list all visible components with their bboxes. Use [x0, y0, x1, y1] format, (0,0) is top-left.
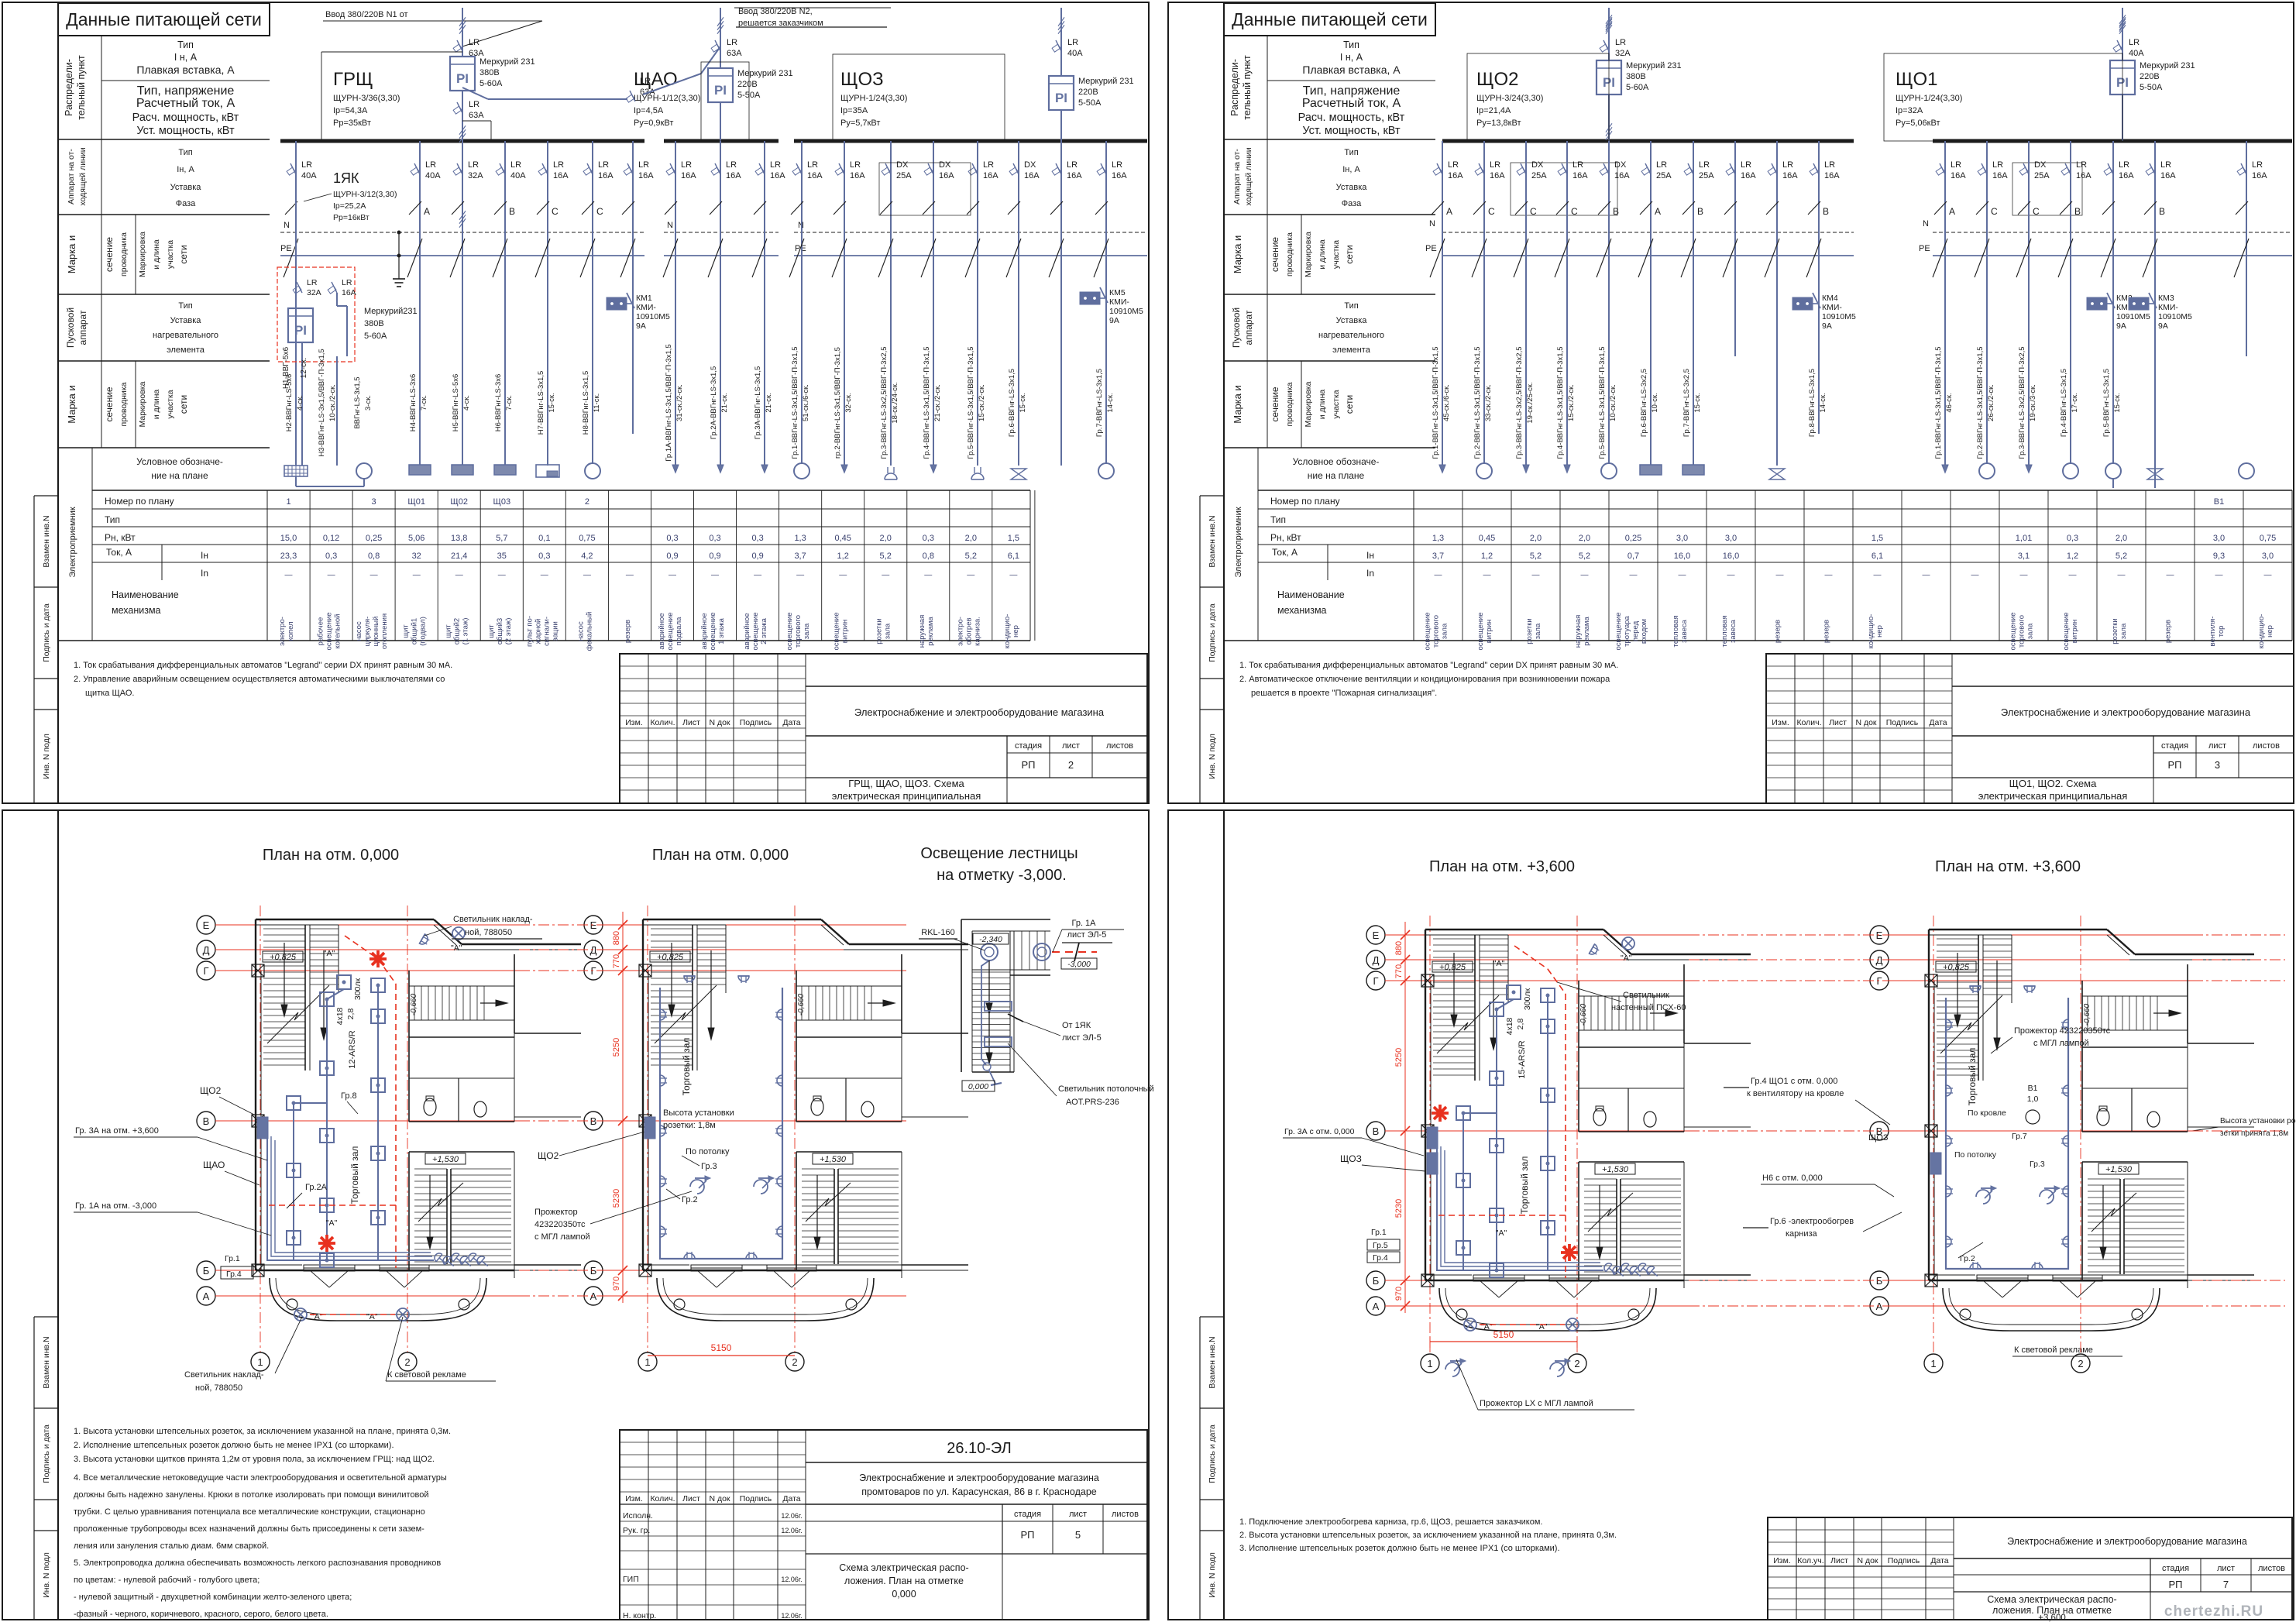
svg-text:жарной: жарной [534, 619, 542, 644]
svg-text:кондицио-: кондицио- [2257, 614, 2266, 649]
svg-text:Высота установки ро-: Высота установки ро- [2220, 1117, 2296, 1125]
svg-text:Электроприемник: Электроприемник [1234, 507, 1243, 577]
svg-text:Взамен инв.N: Взамен инв.N [1208, 515, 1217, 567]
svg-text:1. Ток срабатывания дифференц: 1. Ток срабатывания дифференциальных авт… [1239, 661, 1618, 670]
svg-text:5,06: 5,06 [408, 534, 424, 543]
svg-text:10910М5: 10910М5 [636, 312, 670, 321]
svg-text:—: — [1874, 571, 1882, 579]
svg-text:ЩО1, ЩО2. Схема: ЩО1, ЩО2. Схема [2009, 778, 2097, 789]
svg-text:с МГЛ лампой: с МГЛ лампой [534, 1232, 590, 1242]
svg-text:общий1: общий1 [411, 618, 419, 644]
svg-text:Условное обозначе-: Условное обозначе- [136, 456, 223, 467]
svg-text:16А: 16А [2160, 171, 2176, 180]
svg-text:—: — [1727, 571, 1735, 579]
svg-text:Тип: Тип [105, 514, 120, 525]
svg-text:LR: LR [640, 77, 651, 86]
svg-text:Н7-ВВГнг-LS-3х1,5: Н7-ВВГнг-LS-3х1,5 [537, 371, 545, 435]
svg-text:ложения. План на отметке: ложения. План на отметке [844, 1576, 964, 1586]
svg-text:Гр.1-ВВГнг-LS-3х1,5/ВВГ-П-3х1,: Гр.1-ВВГнг-LS-3х1,5/ВВГ-П-3х1,5 [791, 346, 799, 459]
svg-text:Лист: Лист [1830, 1556, 1848, 1565]
svg-text:5230: 5230 [1394, 1199, 1404, 1218]
svg-text:завеса: завеса [1680, 619, 1689, 643]
svg-text:механизма: механизма [112, 605, 161, 616]
svg-text:нагревательного: нагревательного [153, 331, 218, 340]
svg-text:880: 880 [612, 931, 621, 945]
svg-text:Взамен инв.N: Взамен инв.N [42, 1336, 51, 1388]
svg-text:LR: LR [726, 160, 737, 170]
svg-text:0,9: 0,9 [666, 552, 678, 561]
svg-text:10-ск./2-ск.: 10-ск./2-ск. [328, 384, 337, 421]
svg-text:5250: 5250 [612, 1038, 621, 1057]
svg-text:A: A [1949, 206, 1955, 217]
svg-text:сети: сети [1344, 245, 1355, 263]
svg-text:3: 3 [372, 497, 376, 507]
svg-text:Д: Д [1876, 954, 1883, 966]
svg-text:обогрев: обогрев [964, 617, 973, 644]
svg-text:14-ск.: 14-ск. [1106, 393, 1115, 412]
svg-text:ГРЩ, ЩАО, ЩОЗ. Схема: ГРЩ, ЩАО, ЩОЗ. Схема [848, 778, 964, 789]
svg-text:Iр=32А: Iр=32А [1896, 106, 1923, 115]
svg-text:9А: 9А [636, 321, 646, 331]
svg-text:Гр.1А-ВВГнг-LS-3х1,5/ВВГ-П-3х1: Гр.1А-ВВГнг-LS-3х1,5/ВВГ-П-3х1,5 [665, 344, 673, 461]
svg-text:Тип: Тип [1343, 40, 1359, 50]
svg-text:освещение: освещение [709, 612, 717, 650]
svg-text:C: C [1991, 206, 1998, 217]
svg-text:16А: 16А [1024, 171, 1040, 180]
svg-text:C: C [552, 206, 559, 217]
svg-text:-2,340: -2,340 [979, 935, 1002, 944]
svg-text:32А: 32А [468, 171, 483, 180]
svg-text:16А: 16А [638, 171, 654, 180]
svg-text:LR: LR [1490, 160, 1500, 170]
svg-text:3,7: 3,7 [794, 552, 806, 561]
svg-text:LR: LR [425, 160, 436, 170]
svg-text:1,2: 1,2 [837, 552, 849, 561]
svg-text:2,0: 2,0 [1530, 534, 1542, 543]
svg-text:15-ск.: 15-ск. [1019, 393, 1027, 412]
svg-text:"А": "А" [1621, 954, 1632, 963]
svg-text:1,2: 1,2 [2067, 552, 2078, 561]
svg-text:Гр.4-ВВГнг-LS-3х1,5/ВВГ-П-3х1,: Гр.4-ВВГнг-LS-3х1,5/ВВГ-П-3х1,5 [923, 346, 931, 459]
svg-text:Аппарат на от-: Аппарат на от- [67, 149, 76, 204]
svg-text:Тип: Тип [1270, 514, 1286, 525]
svg-text:Данные питающей сети: Данные питающей сети [1232, 9, 1428, 29]
svg-text:Гр.3-ВВГнг-LS-3х2,5/ВВГ-П-3х2,: Гр.3-ВВГнг-LS-3х2,5/ВВГ-П-3х2,5 [2018, 346, 2026, 459]
svg-text:Фаза: Фаза [176, 199, 196, 208]
svg-text:тепловая: тепловая [1720, 616, 1729, 648]
svg-text:—: — [1483, 571, 1491, 579]
svg-text:16А: 16А [2252, 171, 2267, 180]
svg-text:1ЯК: 1ЯК [333, 170, 359, 186]
svg-text:ЩУРН-1/24(3,30): ЩУРН-1/24(3,30) [1896, 94, 1962, 103]
svg-text:витрин: витрин [1485, 620, 1493, 644]
svg-text:PE: PE [280, 244, 292, 253]
svg-text:общий3: общий3 [496, 618, 504, 644]
svg-text:Светильник потолочный: Светильник потолочный [1058, 1084, 1154, 1094]
svg-text:ЩОЗ: ЩОЗ [1340, 1153, 1362, 1164]
svg-text:Изм.: Изм. [625, 718, 643, 727]
svg-text:LR: LR [807, 160, 818, 170]
svg-text:16А: 16А [1992, 171, 2008, 180]
svg-text:Гр.4-ВВГнг-LS-3х1,5: Гр.4-ВВГнг-LS-3х1,5 [2060, 369, 2068, 437]
svg-text:LR: LR [770, 160, 781, 170]
svg-text:Б: Б [1373, 1275, 1380, 1287]
svg-text:Подпись: Подпись [1886, 718, 1919, 727]
svg-text:—: — [967, 571, 974, 579]
svg-text:Пусковой: Пусковой [1231, 308, 1242, 348]
svg-text:Маркировка: Маркировка [1304, 381, 1313, 427]
svg-text:Н6-ВВГнг-LS-3х6: Н6-ВВГнг-LS-3х6 [494, 374, 503, 432]
svg-text:По потолку: По потолку [1954, 1150, 1997, 1160]
svg-text:LR: LR [2119, 160, 2129, 170]
svg-text:B: B [1823, 206, 1829, 217]
svg-text:По кровле: По кровле [1968, 1108, 2006, 1118]
svg-text:зала: зала [884, 623, 892, 639]
svg-text:26.10-ЭЛ: 26.10-ЭЛ [947, 1440, 1012, 1457]
svg-text:КМИ-: КМИ- [1109, 297, 1129, 307]
svg-text:9А: 9А [2116, 321, 2126, 331]
svg-text:880: 880 [1394, 941, 1404, 955]
svg-text:0,3: 0,3 [2067, 534, 2078, 543]
svg-text:резерв: резерв [2164, 620, 2173, 643]
svg-text:РП: РП [1020, 1529, 1034, 1541]
svg-text:15-ск.: 15-ск. [2113, 393, 2122, 412]
svg-text:вентиля-: вентиля- [2208, 617, 2217, 647]
svg-text:—: — [1776, 571, 1784, 579]
svg-text:63А: 63А [727, 49, 742, 58]
svg-text:РП: РП [2168, 1579, 2182, 1590]
svg-text:DX: DX [1024, 160, 1036, 170]
svg-text:16А: 16А [2119, 171, 2134, 180]
svg-text:розетки: розетки [875, 618, 884, 644]
svg-text:Исполн.: Исполн. [623, 1511, 653, 1521]
svg-text:нер: нер [1875, 625, 1884, 637]
svg-text:DX: DX [1531, 160, 1544, 170]
svg-text:Уст. мощность, кВт: Уст. мощность, кВт [136, 125, 235, 137]
svg-text:Гр.1: Гр.1 [225, 1254, 240, 1263]
svg-text:0,45: 0,45 [1479, 534, 1495, 543]
svg-text:щит: щит [487, 624, 496, 638]
svg-text:Электроснабжение и электрообор: Электроснабжение и электрооборудование м… [859, 1473, 1099, 1483]
svg-text:PE: PE [1919, 244, 1930, 253]
svg-text:1. Ток срабатывания дифференц: 1. Ток срабатывания дифференциальных авт… [74, 661, 452, 670]
svg-text:А: А [203, 1290, 210, 1302]
svg-text:1,5: 1,5 [1872, 534, 1883, 543]
svg-text:31-ск./2-ск.: 31-ск./2-ск. [675, 384, 684, 421]
svg-text:Гр. 1А: Гр. 1А [1071, 919, 1096, 928]
svg-text:—: — [1923, 571, 1930, 579]
svg-text:ЩУРН-1/24(3,30): ЩУРН-1/24(3,30) [840, 94, 907, 103]
svg-text:Ввод 380/220В N2,: Ввод 380/220В N2, [738, 7, 813, 16]
svg-text:КМ5: КМ5 [1109, 288, 1126, 297]
svg-text:Г: Г [1373, 975, 1378, 987]
svg-text:рабочее: рабочее [317, 617, 325, 646]
svg-text:Гр.5-ВВГнг-LS-3х1,5/ВВГ-П-3х1,: Гр.5-ВВГнг-LS-3х1,5/ВВГ-П-3х1,5 [967, 346, 975, 459]
svg-text:1. Подключение электрообогрева: 1. Подключение электрообогрева карниза, … [1239, 1517, 1542, 1527]
svg-text:3,1: 3,1 [2018, 552, 2030, 561]
svg-text:Меркурий 231: Меркурий 231 [1078, 77, 1134, 86]
svg-text:16А: 16А [726, 171, 741, 180]
svg-text:лист ЭЛ-5: лист ЭЛ-5 [1062, 1033, 1102, 1043]
svg-text:3,0: 3,0 [2213, 534, 2225, 543]
svg-text:N док: N док [709, 718, 730, 727]
svg-text:Уст. мощность, кВт: Уст. мощность, кВт [1302, 125, 1401, 137]
svg-text:резерв: резерв [1823, 620, 1831, 643]
svg-text:+0,825: +0,825 [1943, 963, 1970, 972]
svg-text:Меркурий 231: Меркурий 231 [737, 69, 793, 78]
svg-text:РП: РП [2167, 759, 2181, 771]
svg-text:0,7: 0,7 [1627, 552, 1639, 561]
svg-text:наружная: наружная [1574, 615, 1583, 648]
svg-text:"А": "А" [1493, 959, 1505, 968]
svg-text:В: В [203, 1115, 210, 1127]
svg-text:участка: участка [1332, 390, 1341, 418]
svg-text:Маркировка: Маркировка [1304, 232, 1313, 277]
svg-text:Изм.: Изм. [1772, 718, 1789, 727]
svg-text:LR: LR [2252, 160, 2263, 170]
svg-text:16А: 16А [598, 171, 614, 180]
svg-text:Прожектор: Прожектор [534, 1208, 578, 1217]
svg-text:—: — [498, 571, 506, 579]
svg-text:5,2: 5,2 [2116, 552, 2127, 561]
svg-text:к вентилятору на кровле: к вентилятору на кровле [1747, 1089, 1844, 1098]
svg-text:Торговый зал: Торговый зал [1519, 1156, 1530, 1215]
svg-text:Электроснабжение и электрообор: Электроснабжение и электрооборудование м… [2001, 706, 2251, 718]
svg-text:нер: нер [1012, 625, 1020, 637]
svg-text:In: In [201, 568, 208, 579]
svg-text:11-ск.: 11-ск. [593, 393, 601, 413]
svg-text:+0,825: +0,825 [270, 953, 297, 962]
svg-text:сечение: сечение [1270, 237, 1280, 273]
svg-text:витрин: витрин [841, 620, 850, 644]
svg-text:Е: Е [1373, 930, 1380, 941]
svg-text:3-ск.: 3-ск. [364, 395, 373, 411]
svg-text:Подпись: Подпись [740, 1494, 772, 1503]
svg-text:и длина: и длина [1318, 239, 1327, 270]
svg-text:Гр.7: Гр.7 [2012, 1132, 2027, 1141]
svg-text:Наименование: Наименование [112, 589, 179, 600]
svg-text:17-ск.: 17-ск. [2071, 393, 2079, 412]
svg-text:—: — [1532, 571, 1540, 579]
svg-text:16А: 16А [1572, 171, 1588, 180]
svg-text:Уставка: Уставка [1336, 316, 1368, 325]
svg-text:Наименование: Наименование [1277, 589, 1345, 600]
svg-text:ЩАО: ЩАО [203, 1160, 225, 1170]
svg-text:Плавкая вставка, А: Плавкая вставка, А [1302, 64, 1401, 76]
svg-text:А: А [590, 1290, 597, 1302]
svg-text:Светильник: Светильник [1623, 991, 1669, 1000]
svg-text:220В: 220В [737, 80, 758, 89]
svg-text:Н. контр.: Н. контр. [623, 1611, 656, 1620]
svg-text:Iр=4,5А: Iр=4,5А [634, 106, 664, 115]
svg-text:PI: PI [294, 323, 307, 338]
svg-text:Расч. мощность, кВт: Расч. мощность, кВт [1298, 112, 1405, 124]
svg-text:0,000: 0,000 [892, 1589, 916, 1600]
svg-text:сигнали-: сигнали- [542, 617, 551, 646]
svg-text:—: — [370, 571, 378, 579]
svg-text:A: A [1446, 206, 1452, 217]
svg-text:РП: РП [1021, 759, 1035, 771]
svg-text:10-ск./2-ск.: 10-ск./2-ск. [1609, 384, 1617, 421]
svg-text:—: — [413, 571, 421, 579]
svg-text:тротуара: тротуара [1623, 615, 1631, 646]
svg-text:Лист: Лист [682, 1494, 700, 1503]
svg-text:Подпись: Подпись [740, 718, 772, 727]
svg-text:423220350тс: 423220350тс [534, 1220, 586, 1229]
svg-text:-фазный - черного, коричневого: -фазный - черного, коричневого, красного… [74, 1610, 328, 1619]
svg-text:Уставка: Уставка [170, 183, 202, 192]
svg-text:LR: LR [727, 38, 737, 47]
svg-text:реклама: реклама [1583, 617, 1591, 646]
svg-text:Плавкая вставка, А: Плавкая вставка, А [136, 64, 235, 76]
svg-text:КМИ-: КМИ- [2158, 303, 2178, 312]
svg-text:АОТ.PRS-236: АОТ.PRS-236 [1066, 1098, 1119, 1107]
svg-text:2 этажа: 2 этажа [760, 617, 768, 644]
svg-text:настенный ПСХ-60: настенный ПСХ-60 [1611, 1003, 1686, 1012]
svg-text:Тип, напряжение: Тип, напряжение [137, 84, 235, 98]
svg-text:Аппарат на от-: Аппарат на от- [1232, 149, 1242, 204]
svg-text:Марка и: Марка и [66, 235, 77, 274]
svg-text:Гр.4-ВВГнг-LS-3х1,5/ВВГ-П-3х1,: Гр.4-ВВГнг-LS-3х1,5/ВВГ-П-3х1,5 [1556, 346, 1565, 459]
svg-text:1: 1 [1427, 1358, 1432, 1369]
svg-text:зала: зала [803, 623, 811, 639]
svg-text:Инв. N подл: Инв. N подл [1208, 734, 1217, 779]
svg-text:5,7: 5,7 [496, 534, 507, 543]
svg-text:аппарат: аппарат [1243, 310, 1254, 345]
svg-text:Гр.6-ВВГнг-LS-3х2,5: Гр.6-ВВГнг-LS-3х2,5 [1640, 369, 1648, 437]
svg-text:Расчетный ток, А: Расчетный ток, А [136, 97, 235, 110]
svg-text:стадия: стадия [1014, 1510, 1041, 1519]
svg-text:0,8: 0,8 [368, 552, 380, 561]
svg-text:16,0: 16,0 [1674, 552, 1690, 561]
svg-text:15-ск.: 15-ск. [548, 393, 556, 412]
svg-text:12.06г.: 12.06г. [781, 1527, 802, 1534]
svg-text:16А: 16А [1782, 171, 1798, 180]
svg-text:Гр. 3А на отм. +3,600: Гр. 3А на отм. +3,600 [75, 1126, 159, 1136]
svg-text:0,12: 0,12 [323, 534, 339, 543]
svg-text:2,0: 2,0 [965, 534, 977, 543]
svg-text:карниза.: карниза. [973, 617, 981, 646]
svg-text:4. Все металлические нетоковед: 4. Все металлические нетоковедущие части… [74, 1473, 447, 1483]
svg-text:План на отм. +3,600: План на отм. +3,600 [1935, 858, 2081, 875]
svg-text:лист: лист [1069, 1510, 1087, 1519]
svg-text:4-ск.: 4-ск. [296, 395, 304, 411]
svg-text:—: — [1679, 571, 1686, 579]
svg-text:"А": "А" [324, 949, 335, 958]
svg-text:витрин: витрин [2071, 620, 2079, 644]
svg-text:12.06г.: 12.06г. [781, 1612, 802, 1620]
svg-text:Е: Е [590, 919, 597, 931]
svg-text:N док: N док [1857, 1556, 1878, 1565]
svg-text:Б: Б [203, 1265, 210, 1277]
svg-text:ЩО2: ЩО2 [538, 1150, 559, 1161]
svg-text:LR: LR [1782, 160, 1793, 170]
svg-text:DX: DX [939, 160, 951, 170]
svg-text:5: 5 [1075, 1529, 1081, 1541]
svg-text:—: — [711, 571, 719, 579]
svg-text:Прожектор LX с МГЛ лампой: Прожектор LX с МГЛ лампой [1480, 1399, 1593, 1408]
svg-text:A: A [1655, 206, 1661, 217]
svg-text:с МГЛ лампой: с МГЛ лампой [2033, 1039, 2089, 1048]
svg-text:63А: 63А [469, 111, 484, 120]
svg-text:"А": "А" [451, 943, 462, 953]
svg-text:Гр.5-ВВГнг-LS-3х1,5: Гр.5-ВВГнг-LS-3х1,5 [2102, 369, 2111, 437]
svg-text:(подвал): (подвал) [419, 617, 428, 646]
svg-text:—: — [2020, 571, 2028, 579]
svg-text:аварийное: аварийное [743, 613, 751, 649]
svg-text:освещение: освещение [2062, 612, 2071, 650]
svg-text:—: — [583, 571, 591, 579]
svg-text:(2 этаж): (2 этаж) [504, 618, 513, 645]
svg-text:Распредели-: Распредели- [64, 59, 74, 116]
svg-text:КМИ-: КМИ- [1822, 303, 1842, 312]
svg-text:21-ск./2-ск.: 21-ск./2-ск. [933, 384, 942, 421]
svg-text:7: 7 [2223, 1579, 2229, 1590]
svg-text:LR: LR [850, 160, 861, 170]
svg-text:аварийное: аварийное [658, 613, 666, 649]
svg-text:Н3-ВВГнг-LS-3х1,5/ВВГ-П-3х1,5: Н3-ВВГнг-LS-3х1,5/ВВГ-П-3х1,5 [318, 349, 326, 456]
svg-text:12.06г.: 12.06г. [781, 1512, 802, 1520]
svg-text:1,3: 1,3 [794, 534, 806, 543]
svg-text:КМ4: КМ4 [1822, 294, 1838, 303]
svg-text:40А: 40А [510, 171, 526, 180]
svg-text:Меркурий231: Меркурий231 [364, 307, 418, 316]
svg-text:LR: LR [1067, 160, 1078, 170]
svg-text:2. Высота установки штепсельны: 2. Высота установки штепсельных розеток,… [1239, 1531, 1617, 1540]
svg-text:и длина: и длина [1318, 390, 1327, 420]
svg-text:трубки. С целью уравнивания по: трубки. С целью уравнивания потенциала в… [74, 1507, 425, 1517]
svg-text:Тип: Тип [1344, 148, 1358, 157]
svg-text:листов: листов [2258, 1564, 2285, 1573]
svg-text:В: В [1373, 1125, 1380, 1137]
svg-text:A: A [424, 206, 430, 217]
svg-text:21-ск.: 21-ск. [765, 393, 773, 412]
svg-text:"А": "А" [1481, 1322, 1493, 1332]
svg-text:12-ск.: 12-ск. [300, 358, 308, 379]
svg-text:-0,660: -0,660 [2083, 1003, 2091, 1026]
svg-text:ние на плане: ние на плане [151, 470, 208, 481]
svg-text:Светильник наклад-: Светильник наклад- [453, 915, 533, 924]
svg-text:Подпись: Подпись [1888, 1556, 1920, 1565]
svg-text:"А": "А" [326, 1218, 338, 1228]
svg-text:2. Исполнение штепсельных розе: 2. Исполнение штепсельных розеток должно… [74, 1441, 394, 1450]
svg-text:51-ск./6-ск.: 51-ск./6-ск. [802, 384, 810, 421]
svg-text:32А: 32А [307, 288, 321, 297]
svg-text:LR: LR [1741, 160, 1751, 170]
svg-text:пульт по-: пульт по- [525, 616, 534, 647]
svg-text:—: — [1825, 571, 1833, 579]
svg-text:и длина: и длина [152, 390, 161, 420]
svg-text:2. Автоматическое отключение: 2. Автоматическое отключение вентиляции … [1239, 675, 1610, 684]
svg-text:0,9: 0,9 [709, 552, 720, 561]
svg-text:Прожектор 423220350тс: Прожектор 423220350тс [2014, 1026, 2111, 1036]
svg-text:0,1: 0,1 [538, 534, 550, 543]
svg-text:розетки: розетки [2111, 618, 2119, 644]
svg-text:Подпись и дата: Подпись и дата [42, 603, 51, 662]
svg-text:Рук. гр.: Рук. гр. [623, 1526, 650, 1535]
svg-text:Тип: Тип [1344, 301, 1358, 311]
svg-text:970: 970 [612, 1277, 621, 1290]
svg-text:1,0: 1,0 [2027, 1095, 2039, 1104]
svg-text:Кол.уч.: Кол.уч. [1797, 1556, 1823, 1565]
svg-text:Щ02: Щ02 [450, 497, 468, 507]
svg-text:16А: 16А [807, 171, 823, 180]
svg-text:освещение: освещение [751, 612, 760, 650]
svg-text:3,7: 3,7 [1432, 552, 1444, 561]
svg-text:ГИП: ГИП [623, 1575, 639, 1584]
svg-text:1. Высота установки штепсельны: 1. Высота установки штепсельных розеток,… [74, 1427, 451, 1436]
svg-text:Iр=35А: Iр=35А [840, 106, 868, 115]
